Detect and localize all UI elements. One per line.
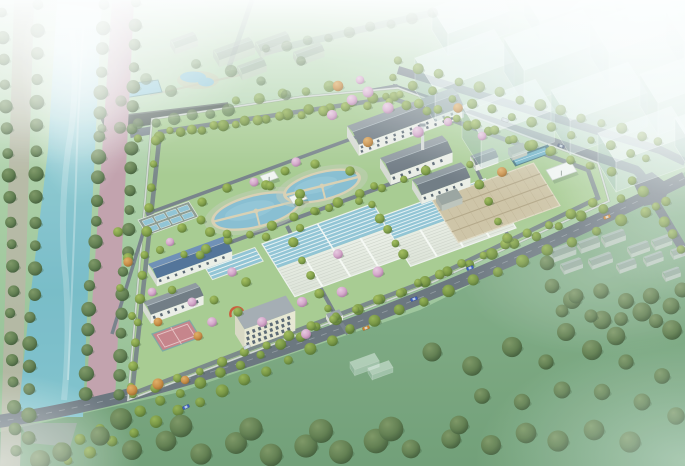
aerial-rendering [0, 0, 685, 466]
rendering-canvas [0, 0, 685, 466]
global-tint [0, 0, 685, 466]
mist-overlays [0, 0, 685, 466]
